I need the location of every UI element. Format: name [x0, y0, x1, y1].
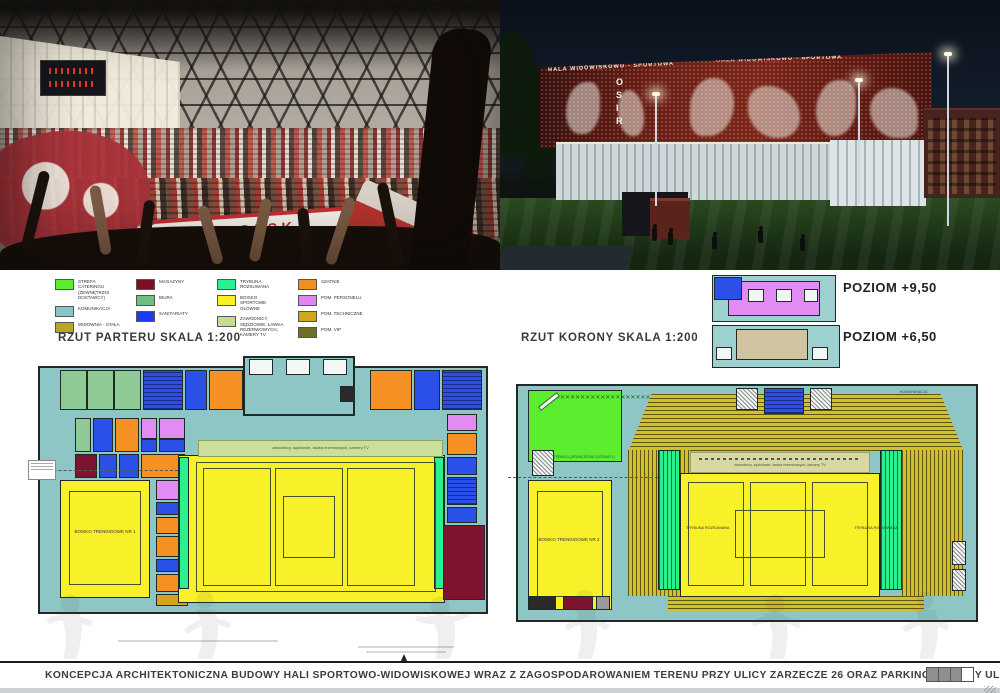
legend-label: BIURA: [159, 295, 203, 300]
legend-column: STREFA CATERINGU (ZEWNĘTRZNI DOSTAWCY) K…: [55, 279, 122, 338]
sanitary-room: [185, 370, 207, 410]
legend: STREFA CATERINGU (ZEWNĘTRZNI DOSTAWCY) K…: [55, 279, 365, 338]
locker-room: [447, 433, 477, 455]
person-silhouette: [712, 236, 717, 249]
stair-room: [143, 370, 183, 410]
street-lamp: [947, 56, 949, 226]
person-silhouette: [668, 232, 673, 245]
corner-resize-mark: [984, 686, 996, 693]
plan-room: [804, 289, 818, 302]
legend-label: KOMUNIKACJA: [78, 306, 122, 311]
locker-room: [370, 370, 412, 410]
legend-item: POM. TECHNICZNE: [298, 311, 365, 322]
section-line: [508, 477, 658, 478]
players-bench-band: zawodnicy, sędziowie, ławka rezerwowych,…: [690, 452, 870, 473]
level-label-650: POZIOM +6,50: [843, 329, 937, 344]
competition-board: POLSKA HALA WIDOWISKOWO - SPORTOWA HALA …: [0, 0, 1000, 693]
legend-item: TRYBUNA ROZSUWANA: [217, 279, 284, 290]
stair-room: [736, 388, 758, 410]
legend-column: MAGAZYNY BIURA SANITARIATY: [136, 279, 203, 338]
retractable-stand-right: [880, 450, 902, 590]
legend-item: BIURA: [136, 295, 203, 306]
legend-column: SZATNIE POM. PERSONELU POM. TECHNICZNE P…: [298, 279, 365, 338]
facade-signage: HALA WIDOWISKOWO - SPORTOWA: [548, 61, 674, 74]
neighbor-building: [924, 108, 1000, 198]
plan-room: [736, 329, 808, 360]
level-plan-650: [712, 325, 840, 368]
legend-item: WIDOWNIA - STAŁA: [55, 322, 122, 333]
sanitary-room: [99, 454, 117, 478]
legend-label: SZATNIE: [321, 279, 365, 284]
board-caption: KONCEPCJA ARCHITEKTONICZNA BUDOWY HALI S…: [45, 670, 1000, 681]
sanitary-room: [119, 454, 139, 478]
legend-swatch: [55, 322, 74, 333]
players-bench-band: zawodnicy, sędziowie, ławka rezerwowych,…: [198, 440, 443, 457]
osir-vertical-sign: OS IR: [616, 78, 623, 126]
right-plan-title: RZUT KORONY SKALA 1:200: [521, 332, 699, 344]
storage-room: [75, 454, 97, 478]
person-silhouette: [800, 238, 805, 251]
athlete-silhouette: [748, 86, 800, 138]
training-court-1: BOISKO TRENINGOWE NR 1: [60, 480, 150, 598]
legend-swatch: [136, 311, 155, 322]
tribune-label: TRYBUNA ROZSUWANA: [838, 526, 898, 530]
stair-room: [442, 370, 482, 410]
sanitary-room: [447, 457, 477, 475]
plan-room: [776, 289, 792, 302]
bottom-margin: [0, 688, 1000, 693]
staff-room: [447, 414, 477, 431]
legend-item: SZATNIE: [298, 279, 365, 290]
legend-swatch: [217, 316, 236, 327]
athlete-silhouette: [566, 82, 600, 134]
plan-room: [340, 386, 355, 402]
athlete-silhouette: [870, 88, 918, 138]
legend-label: WIDOWNIA - STAŁA: [78, 322, 122, 327]
glazed-base: [830, 140, 926, 206]
legend-item: POM. PERSONELU: [298, 295, 365, 306]
facade-signage: HALA WIDOWISKOWO - SPORTOWA: [716, 54, 842, 63]
legend-swatch: [298, 279, 317, 290]
legend-label: STREFA CATERINGU (ZEWNĘTRZNI DOSTAWCY): [78, 279, 122, 301]
office-room: [114, 370, 141, 410]
legend-item: KOMUNIKACJA: [55, 306, 122, 317]
athlete-silhouette: [816, 80, 856, 136]
retractable-stand: [179, 457, 189, 589]
legend-swatch: [298, 311, 317, 322]
legend-item: BOISKO SPORTOWE GŁÓWNE: [217, 295, 284, 311]
komunikacja-label: KOMUNIKACJA: [900, 390, 927, 394]
plan-room: [75, 418, 91, 452]
scale-bar: [926, 667, 974, 682]
exterior-render: HALA WIDOWISKOWO - SPORTOWA HALA WIDOWIS…: [500, 0, 1000, 270]
legend-item: STREFA CATERINGU (ZEWNĘTRZNI DOSTAWCY): [55, 279, 122, 301]
volleyball-court: [347, 468, 415, 586]
stair-room: [952, 541, 966, 565]
legend-swatch: [136, 279, 155, 290]
sanitary-room: [141, 439, 157, 452]
legend-swatch: [298, 327, 317, 338]
sports-silhouette-watermark: [0, 588, 1000, 662]
photo-vignette: [0, 0, 500, 270]
vestibule: [286, 359, 310, 375]
legend-swatch: [55, 279, 74, 290]
legend-column: TRYBUNA ROZSUWANA BOISKO SPORTOWE GŁÓWNE…: [217, 279, 284, 338]
legend-label: TRYBUNA ROZSUWANA: [240, 279, 284, 290]
band-text: zawodnicy, sędziowie, ławka rezerwowych,…: [691, 463, 869, 467]
legend-label: POM. VIP: [321, 327, 365, 332]
staff-room: [141, 418, 157, 439]
walkway: [500, 246, 634, 270]
level-label-950: POZIOM +9,50: [843, 280, 937, 295]
stair-room: [810, 388, 832, 410]
level-plan-950: [712, 275, 836, 322]
center-court: [283, 496, 335, 558]
legend-label: MAGAZYNY: [159, 279, 203, 284]
legend-label: POM. PERSONELU: [321, 295, 365, 300]
street-lamp: [858, 82, 860, 204]
person-silhouette: [758, 230, 763, 243]
dimension-note: [28, 460, 56, 480]
sanitary-room: [447, 507, 477, 523]
board-caption-bar: KONCEPCJA ARCHITEKTONICZNA BUDOWY HALI S…: [0, 661, 1000, 690]
person-silhouette: [652, 228, 657, 241]
sanitary-room: [414, 370, 440, 410]
plan-room: [714, 277, 742, 300]
legend-label: BOISKO SPORTOWE GŁÓWNE: [240, 295, 284, 311]
legend-swatch: [298, 295, 317, 306]
street-lamp: [655, 96, 657, 206]
plan-room: [812, 347, 828, 360]
vestibule: [323, 359, 347, 375]
training-court-1-label: BOISKO TRENINGOWE NR 1: [67, 529, 143, 534]
legend-item: MAGAZYNY: [136, 279, 203, 290]
stair-room: [532, 450, 554, 476]
control-room: [764, 388, 804, 414]
interior-photo: POLSKA: [0, 0, 500, 270]
office-room: [87, 370, 114, 410]
legend-label: POM. TECHNICZNE: [321, 311, 365, 316]
plan-room: [748, 289, 764, 302]
bench-row: [699, 458, 861, 460]
sanitary-room: [159, 439, 185, 452]
locker-room: [209, 370, 243, 410]
left-plan-title: RZUT PARTERU SKALA 1:200: [58, 332, 241, 344]
legend-item: SANITARIATY: [136, 311, 203, 322]
legend-swatch: [217, 295, 236, 306]
band-text: zawodnicy, sędziowie, ławka rezerwowych,…: [199, 446, 442, 451]
legend-label: SANITARIATY: [159, 311, 203, 316]
plan-room: [115, 418, 139, 452]
table-symbols: ✕✕✕✕✕✕✕✕✕✕✕✕✕✕✕✕✕✕✕✕✕✕✕✕: [555, 395, 618, 447]
volleyball-court: [203, 468, 271, 586]
legend-swatch: [55, 306, 74, 317]
legend-swatch: [136, 295, 155, 306]
legend-item: POM. VIP: [298, 327, 365, 338]
tribune-label: TRYBUNA ROZSUWANA: [686, 526, 746, 530]
retractable-stand-left: [658, 450, 680, 590]
vestibule: [249, 359, 273, 375]
plan-room: [716, 347, 732, 360]
sanitary-room: [93, 418, 113, 452]
staff-room: [159, 418, 185, 439]
center-court: [735, 510, 825, 558]
stair-room: [447, 477, 477, 505]
hall-facade: HALA WIDOWISKOWO - SPORTOWA HALA WIDOWIS…: [540, 52, 932, 148]
legend-label: ZAWODNICY, SĘDZIOWIE, ŁAWKA REZERWOWYCH,…: [240, 316, 284, 338]
office-room: [60, 370, 87, 410]
training-court-2-label: BOISKO TRENINGOWE NR 2: [533, 537, 605, 542]
legend-swatch: [217, 279, 236, 290]
athlete-silhouette: [690, 78, 734, 136]
